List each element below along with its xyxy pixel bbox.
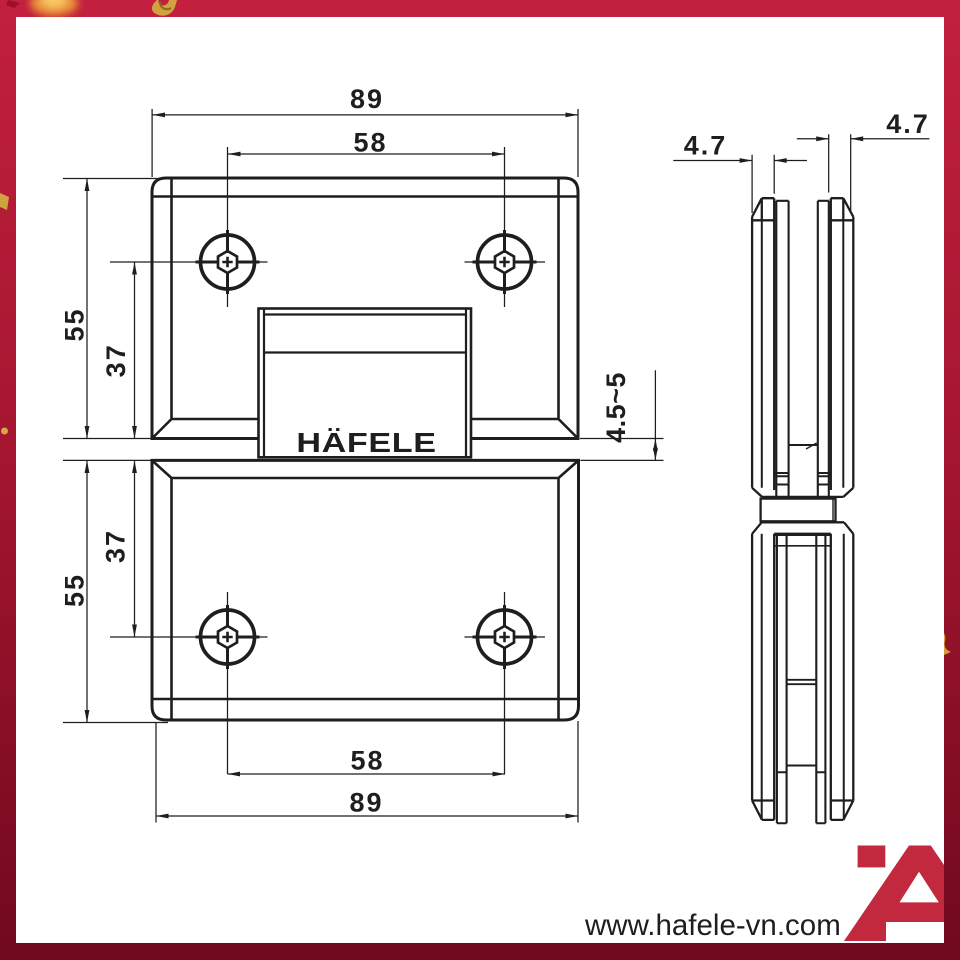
svg-text:89: 89 (350, 84, 384, 114)
svg-text:58: 58 (350, 746, 384, 776)
svg-text:37: 37 (101, 529, 131, 563)
svg-text:HÄFELE: HÄFELE (296, 427, 436, 458)
svg-text:4.7: 4.7 (886, 109, 930, 139)
svg-text:58: 58 (353, 128, 387, 158)
svg-text:55: 55 (60, 573, 90, 607)
svg-text:www.hafele-vn.com: www.hafele-vn.com (584, 909, 841, 942)
svg-text:37: 37 (101, 343, 131, 377)
svg-text:4.5~5: 4.5~5 (601, 372, 631, 443)
svg-text:89: 89 (349, 788, 383, 818)
svg-text:4.7: 4.7 (684, 131, 728, 161)
svg-text:55: 55 (60, 307, 90, 341)
